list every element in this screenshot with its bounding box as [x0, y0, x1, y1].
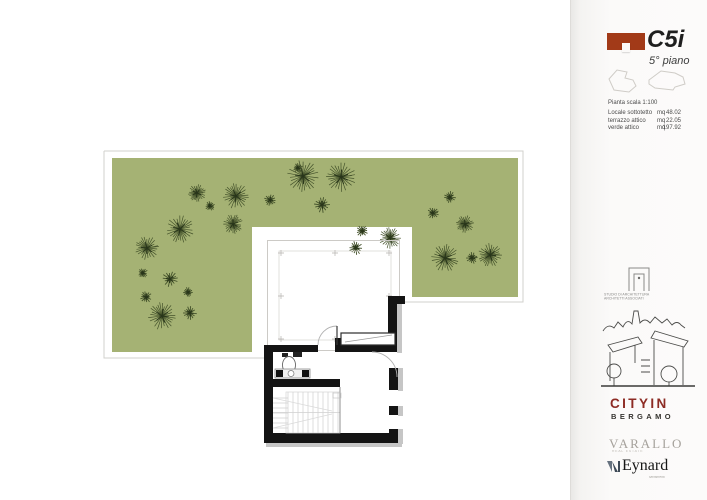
- partner-eynard-sub: serramenti: [649, 476, 665, 479]
- area-row: terrazzo attico mq 22.05: [608, 118, 681, 126]
- tree: [350, 241, 363, 255]
- sketch-walls: [610, 340, 683, 385]
- area-table: Locale sottotetto mq 48.02 terrazzo atti…: [608, 110, 681, 133]
- sink-fixture: [302, 370, 309, 377]
- wall-bed-base: [337, 345, 395, 352]
- area-label: terrazzo attico: [608, 118, 646, 124]
- wall-right-corner: [389, 429, 398, 443]
- wall-right-seg2: [389, 406, 398, 415]
- wall-right-stub: [388, 296, 405, 304]
- partner-eynard: Eynard: [622, 457, 668, 475]
- area-unit: mq: [657, 110, 665, 116]
- floor-plan: [0, 0, 570, 500]
- footprint-shape-left: [609, 70, 636, 92]
- bathroom-fixtures: [275, 352, 310, 378]
- tree: [357, 226, 368, 236]
- area-value: 197.92: [663, 125, 681, 131]
- sketch-roof-right: [651, 331, 688, 347]
- area-unit: mq: [657, 118, 665, 124]
- sketch-steps: [641, 360, 650, 372]
- footprint-shape-right: [649, 71, 685, 90]
- area-label: verde attico: [608, 125, 639, 131]
- studio-logo-dot: [638, 277, 640, 279]
- plan-sheet-page: C5i 5° piano Pianta scala 1:100 Locale s…: [0, 0, 707, 500]
- unit-code: C5i: [647, 26, 684, 54]
- area-value: 22.05: [666, 118, 681, 124]
- bath-fixture: [293, 352, 302, 357]
- green-area: [112, 158, 518, 352]
- wall-bottom: [264, 433, 398, 443]
- tree: [380, 227, 401, 249]
- info-sidebar: C5i 5° piano Pianta scala 1:100 Locale s…: [570, 0, 707, 500]
- studio-caption-line2: ARCHITETTI ASSOCIATI: [604, 297, 668, 301]
- area-value: 48.02: [666, 110, 681, 116]
- sketch-roof-left: [608, 337, 642, 352]
- staircase: [273, 387, 341, 433]
- unit-position-icon: [607, 33, 645, 50]
- sink-basin: [288, 371, 294, 377]
- sink-fixture: [276, 370, 283, 377]
- eynard-mark-left: [607, 461, 612, 472]
- wall-bath-bottom: [273, 379, 340, 387]
- brand-bergamo: BERGAMO: [611, 412, 674, 421]
- wall-left: [264, 345, 273, 443]
- unit-icon-notch: [622, 43, 630, 52]
- bed: [341, 333, 395, 345]
- city-sketch: [599, 305, 697, 389]
- area-row: Locale sottotetto mq 48.02: [608, 110, 681, 118]
- partner-varallo-sub: REAL ESTATE: [612, 450, 643, 453]
- plan-scale-label: Pianta scala 1:100: [608, 100, 657, 106]
- area-label: Locale sottotetto: [608, 110, 652, 116]
- studio-logo-frame: [629, 268, 649, 291]
- studio-logo-doorway: [634, 274, 644, 291]
- area-row: verde attico mq 197.92: [608, 125, 681, 133]
- sketch-skyline: [603, 311, 685, 331]
- brand-cityin: CITYIN: [610, 396, 669, 411]
- footprint-outlines: [605, 64, 693, 98]
- studio-caption: STUDIO DI ARCHITETTURA ARCHITETTI ASSOCI…: [604, 293, 668, 301]
- eynard-mark-icon: [607, 459, 621, 473]
- studio-logo: [626, 266, 652, 292]
- sketch-tree-left: [607, 364, 621, 378]
- eynard-mark-right: [612, 461, 620, 472]
- sketch-tree-right: [661, 366, 677, 382]
